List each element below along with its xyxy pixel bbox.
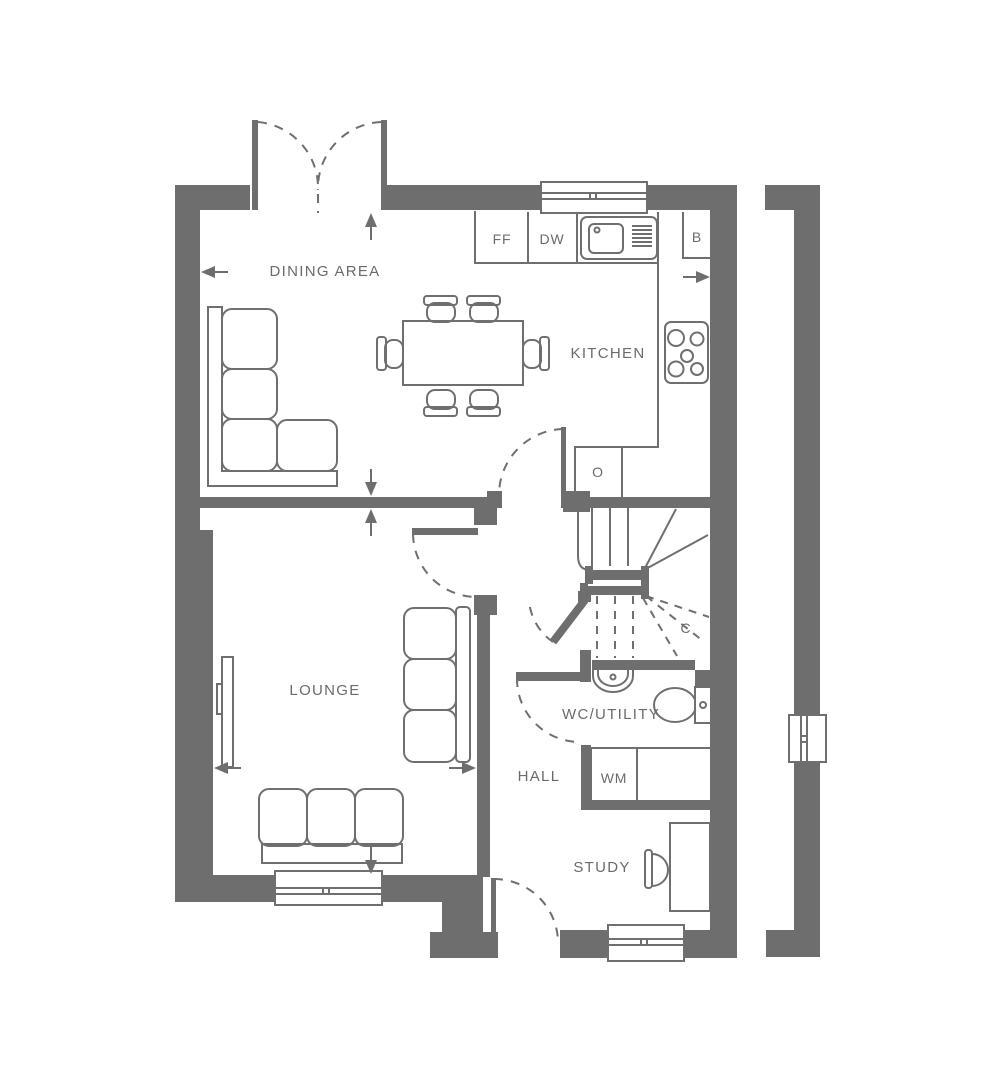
study-label: STUDY (573, 859, 630, 876)
cupboard-door (529, 600, 585, 642)
lounge-door-top-post (474, 505, 497, 525)
cupboard-label: C (681, 620, 692, 636)
french-doors (258, 122, 381, 213)
front-door-leaf (491, 878, 496, 943)
kitchen-label: KITCHEN (571, 345, 646, 362)
cupboard-door-leaf (553, 600, 585, 642)
tv-unit (217, 657, 233, 767)
french-door-right-jamb (381, 120, 387, 210)
corner-sofa (208, 307, 337, 486)
lounge-window (275, 871, 382, 905)
dining-chairs (377, 296, 549, 416)
dining-door (499, 427, 566, 494)
wc-utility-label: WC/UTILITY (562, 706, 660, 723)
toilet (654, 687, 711, 723)
dining-door-leaf (561, 427, 566, 493)
study-window (608, 925, 684, 961)
lounge-door-leaf (412, 528, 478, 535)
dining-table (403, 321, 523, 385)
dining-area-label: DINING AREA (270, 263, 381, 280)
lounge-sofa-side (404, 607, 470, 762)
floor-plan-page: DINING AREA KITCHEN LOUNGE WC/UTILITY HA… (0, 0, 998, 1080)
kitchen-window (541, 182, 647, 213)
front-door (491, 878, 558, 943)
sink (581, 217, 657, 259)
washing-machine-label: WM (601, 770, 627, 786)
study-desk (670, 823, 710, 911)
hob (665, 322, 708, 383)
french-door-left-jamb (252, 120, 258, 210)
floor-plan: DINING AREA KITCHEN LOUNGE WC/UTILITY HA… (0, 0, 998, 1080)
lounge-sofa-bottom (259, 789, 403, 863)
fridge-freezer-label: FF (493, 231, 512, 247)
lounge-label: LOUNGE (289, 682, 360, 699)
oven-label: O (592, 464, 604, 480)
dishwasher-label: DW (540, 231, 565, 247)
wc-door-leaf (516, 672, 581, 681)
neighbour-wall (765, 185, 820, 957)
hall-label: HALL (518, 768, 561, 785)
boiler-label: B (692, 229, 702, 245)
drainer-icon (632, 226, 652, 246)
side-window (789, 715, 826, 762)
lounge-door-bottom-post (474, 595, 497, 615)
lounge-door (412, 528, 478, 597)
desk-chair (645, 850, 668, 888)
